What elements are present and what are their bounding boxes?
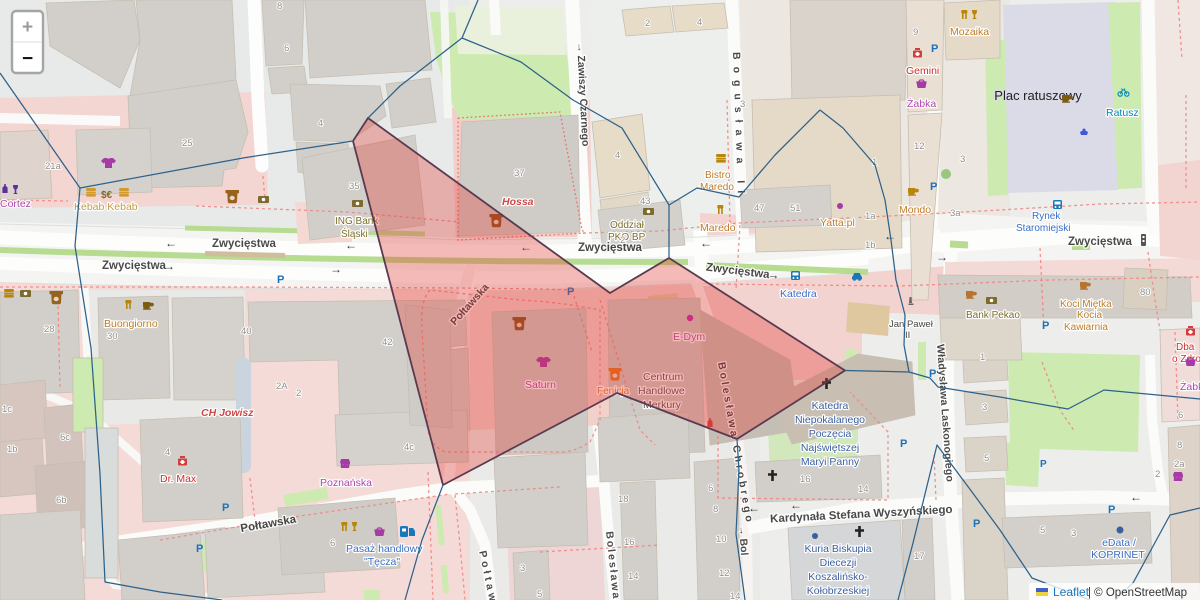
svg-text:Kawiarnia: Kawiarnia: [1064, 322, 1108, 333]
svg-text:P: P: [973, 518, 980, 530]
svg-text:Buongiorno: Buongiorno: [104, 318, 158, 330]
svg-text:Maryi Panny: Maryi Panny: [801, 456, 860, 468]
svg-text:−: −: [22, 49, 33, 70]
svg-text:16: 16: [624, 537, 635, 548]
svg-text:5: 5: [984, 453, 989, 464]
svg-text:PKO BP: PKO BP: [608, 232, 646, 243]
svg-text:Kołobrzeskiej: Kołobrzeskiej: [807, 585, 869, 597]
svg-text:25: 25: [182, 138, 193, 149]
svg-text:→: →: [936, 250, 948, 264]
svg-text:←: ←: [165, 236, 177, 250]
svg-text:P: P: [900, 438, 907, 450]
svg-text:←: ←: [700, 236, 712, 250]
svg-text:Ratusz: Ratusz: [1106, 107, 1139, 119]
svg-text:CH Jowisz: CH Jowisz: [201, 407, 254, 419]
svg-text:2: 2: [620, 235, 625, 246]
svg-text:Żabka: Żabka: [907, 97, 936, 110]
svg-text:40: 40: [241, 326, 252, 337]
svg-text:P: P: [1042, 320, 1049, 332]
svg-text:42: 42: [382, 337, 393, 348]
svg-text:43: 43: [640, 196, 651, 207]
svg-text:II: II: [905, 330, 910, 341]
svg-text:Zwycięstwa: Zwycięstwa: [102, 260, 167, 272]
svg-text:1a: 1a: [865, 211, 876, 222]
svg-text:8: 8: [713, 504, 718, 515]
svg-text:Kocia: Kocia: [1077, 310, 1102, 321]
svg-text:5: 5: [537, 589, 542, 600]
svg-text:eData /: eData /: [1102, 537, 1136, 549]
svg-text:Hossa: Hossa: [502, 196, 534, 208]
svg-text:12: 12: [719, 568, 730, 579]
svg-text:P: P: [222, 502, 229, 514]
svg-text:2: 2: [296, 388, 301, 399]
svg-text:Poznańska: Poznańska: [320, 477, 372, 489]
svg-text:35: 35: [349, 181, 360, 192]
svg-text:P: P: [1108, 504, 1115, 516]
svg-text:Zwycięstwa: Zwycięstwa: [212, 238, 277, 250]
svg-text:6: 6: [330, 538, 335, 549]
svg-text:14: 14: [858, 484, 869, 495]
svg-text:5: 5: [1040, 525, 1045, 536]
svg-text:P: P: [277, 274, 284, 286]
svg-text:4: 4: [165, 447, 170, 458]
svg-text:Yatta.pl: Yatta.pl: [820, 217, 855, 229]
svg-text:←: ←: [790, 498, 802, 512]
svg-text:8: 8: [1177, 440, 1182, 451]
svg-text:Żabk: Żabk: [1180, 380, 1200, 393]
svg-text:21a: 21a: [45, 161, 62, 172]
svg-text:Dba: Dba: [1176, 342, 1195, 353]
svg-text:KOPRINET: KOPRINET: [1091, 549, 1145, 561]
svg-text:←: ←: [345, 238, 357, 252]
svg-text:3: 3: [740, 99, 745, 110]
svg-text:51: 51: [790, 203, 801, 214]
svg-text:←: ←: [1130, 490, 1142, 504]
svg-text:3: 3: [1071, 528, 1076, 539]
svg-text:80: 80: [1140, 287, 1151, 298]
svg-text:Bank Pekao: Bank Pekao: [966, 310, 1020, 321]
svg-text:2: 2: [1155, 469, 1160, 480]
svg-text:1b: 1b: [7, 444, 18, 455]
svg-text:Bistro: Bistro: [705, 170, 731, 181]
svg-text:P: P: [930, 181, 937, 193]
svg-text:17: 17: [914, 551, 925, 562]
svg-text:1c: 1c: [2, 404, 12, 415]
svg-text:Katedra: Katedra: [780, 288, 817, 300]
svg-text:1b: 1b: [865, 240, 876, 251]
svg-text:"Tęcza": "Tęcza": [364, 556, 400, 568]
svg-text:6: 6: [708, 483, 713, 494]
svg-text:Mondo: Mondo: [899, 204, 931, 216]
svg-text:←: ←: [748, 501, 760, 515]
svg-text:Rynek: Rynek: [1032, 211, 1061, 222]
svg-text:30: 30: [107, 331, 118, 342]
svg-text:3: 3: [960, 154, 965, 165]
svg-text:4: 4: [615, 150, 620, 161]
svg-text:P: P: [1040, 459, 1047, 470]
svg-text:P: P: [931, 43, 938, 55]
svg-text:→: →: [163, 259, 175, 273]
svg-text:Pasaż handlowy: Pasaż handlowy: [346, 543, 423, 555]
svg-text:→: →: [767, 267, 781, 282]
svg-text:14: 14: [730, 591, 741, 600]
svg-text:Oddział: Oddział: [610, 220, 645, 231]
svg-text:Najświętszej: Najświętszej: [801, 442, 859, 454]
svg-text:P: P: [196, 543, 203, 555]
svg-text:Cortez: Cortez: [0, 198, 31, 210]
svg-text:28: 28: [44, 324, 55, 335]
svg-text:Koci Miętka: Koci Miętka: [1060, 299, 1112, 310]
svg-text:1: 1: [980, 352, 985, 363]
svg-text:Katedra: Katedra: [812, 400, 849, 412]
svg-text:Jan Paweł: Jan Paweł: [889, 319, 934, 330]
svg-text:Niepokalanego: Niepokalanego: [795, 414, 865, 426]
svg-text:Zwycięstwa: Zwycięstwa: [578, 242, 643, 254]
svg-text:6b: 6b: [56, 495, 67, 506]
svg-text:9: 9: [913, 27, 918, 38]
svg-text:2A: 2A: [276, 381, 288, 392]
svg-text:4c: 4c: [404, 442, 414, 453]
svg-text:18: 18: [618, 494, 629, 505]
svg-text:3a: 3a: [950, 208, 961, 219]
svg-text:Maredo: Maredo: [700, 182, 734, 193]
svg-text:3: 3: [520, 563, 525, 574]
svg-text:Maredo: Maredo: [700, 222, 736, 234]
svg-text:$€: $€: [101, 190, 113, 201]
svg-text:| © OpenStreetMap: | © OpenStreetMap: [1088, 587, 1187, 599]
svg-text:47: 47: [754, 203, 765, 214]
svg-text:Koszalińsko-: Koszalińsko-: [808, 571, 868, 583]
svg-text:3: 3: [982, 402, 987, 413]
svg-text:4: 4: [697, 17, 702, 28]
svg-text:Plac ratuszowy: Plac ratuszowy: [994, 88, 1082, 103]
svg-text:Diecezji: Diecezji: [820, 557, 857, 569]
svg-text:Zwycięstwa: Zwycięstwa: [1068, 236, 1133, 248]
svg-text:Kuria Biskupia: Kuria Biskupia: [804, 543, 871, 555]
svg-text:37: 37: [514, 168, 525, 179]
svg-text:2a: 2a: [1174, 459, 1185, 470]
svg-text:Poczęcia: Poczęcia: [809, 428, 852, 440]
svg-text:Leaflet: Leaflet: [1053, 585, 1090, 599]
svg-text:Kebab Kebab: Kebab Kebab: [74, 201, 138, 213]
svg-text:→: →: [330, 262, 342, 276]
svg-text:Gemini: Gemini: [906, 65, 939, 77]
svg-text:6c: 6c: [60, 432, 70, 443]
svg-text:Mozaika: Mozaika: [950, 26, 989, 38]
svg-text:8: 8: [277, 1, 282, 12]
svg-text:4: 4: [318, 118, 323, 129]
svg-text:+: +: [22, 17, 33, 38]
svg-text:16: 16: [800, 474, 811, 485]
svg-text:Śląski: Śląski: [341, 227, 368, 240]
svg-text:Staromiejski: Staromiejski: [1016, 223, 1070, 234]
svg-text:14: 14: [628, 571, 639, 582]
svg-text:10: 10: [716, 534, 727, 545]
svg-text:Dr. Max: Dr. Max: [160, 473, 197, 485]
svg-text:6: 6: [284, 43, 289, 54]
svg-text:2: 2: [645, 18, 650, 29]
svg-text:6: 6: [1178, 410, 1183, 421]
svg-text:12: 12: [914, 141, 925, 152]
